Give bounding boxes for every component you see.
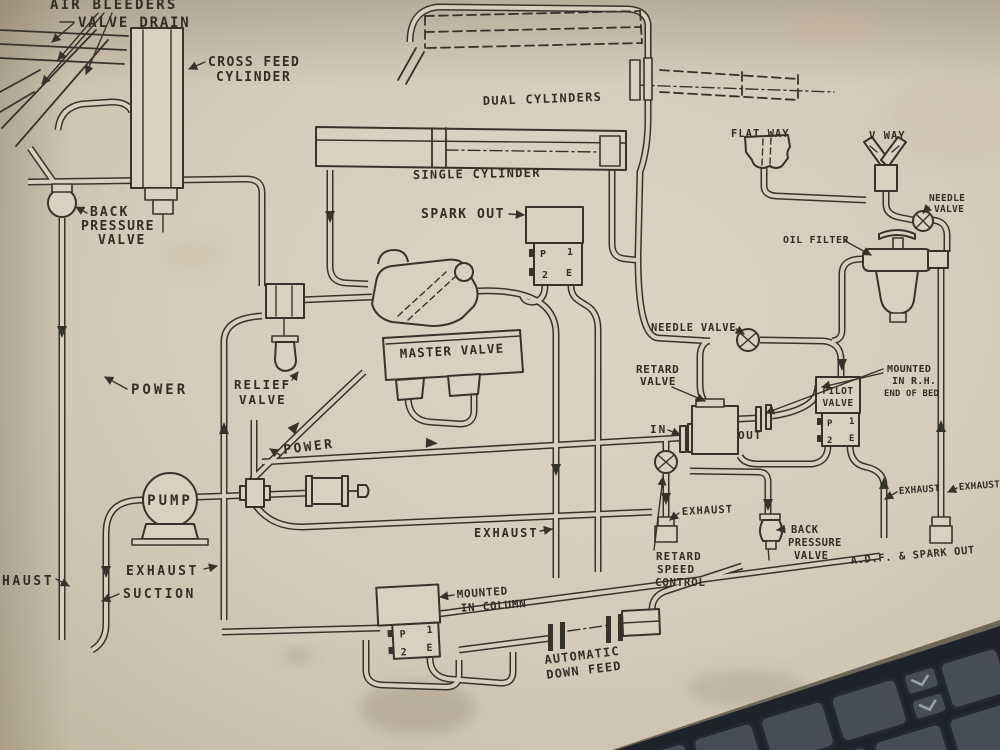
- label-pump: PUMP: [147, 493, 193, 509]
- connector-bar: [606, 616, 611, 643]
- label-air-bleeders: AIR BLEEDERS: [50, 0, 178, 13]
- label-back-pressure-left-1: BACK: [90, 205, 129, 220]
- port-e: E: [566, 268, 572, 279]
- label-retard-valve-2: VALVE: [640, 375, 676, 388]
- label-back-pressure-right-3: VALVE: [794, 550, 829, 562]
- label-valve-drain: VALVE DRAIN: [78, 15, 191, 31]
- port-1: 1: [849, 417, 854, 427]
- label-single-cylinder: SINGLE CYLINDER: [413, 166, 541, 182]
- spark-out-valve: [526, 207, 583, 285]
- label-relief-2: VALVE: [239, 392, 287, 407]
- port-2: 2: [827, 436, 832, 446]
- label-power-left: POWER: [131, 382, 188, 398]
- schematic-svg: AIR BLEEDERS VALVE DRAIN CROSS FEED CYLI…: [0, 0, 1000, 750]
- retard-valve-top-flange: [696, 399, 724, 407]
- label-exhaust-cut: HAUST: [2, 574, 54, 589]
- label-out: OUT: [738, 429, 762, 442]
- back-pressure-valve-right-body: [760, 520, 782, 541]
- oil-filter-nub: [890, 313, 906, 322]
- label-rsc-3: CONTROL: [655, 576, 706, 589]
- rod-end-cap: [600, 136, 620, 166]
- label-spark-out: SPARK OUT: [421, 207, 505, 222]
- label-back-pressure-left-2: PRESSURE: [81, 219, 155, 234]
- out-flange: [766, 405, 771, 429]
- plug-bullet: [358, 485, 369, 497]
- port-2: 2: [400, 647, 407, 658]
- paper-stain: [360, 682, 476, 734]
- paper-stain: [162, 241, 222, 269]
- label-relief-1: RELIEF: [234, 377, 291, 392]
- pump-base: [142, 524, 198, 539]
- cross-fitting: [246, 479, 264, 507]
- drain-fitting: [153, 200, 173, 214]
- port-2: 2: [542, 270, 548, 281]
- label-back-pressure-left-3: VALVE: [98, 233, 146, 248]
- cylinder-flange: [145, 188, 177, 200]
- label-rsc-1: RETARD: [656, 550, 702, 563]
- port-e: E: [426, 643, 433, 654]
- label-v-way: V WAY: [869, 130, 906, 142]
- port-1: 1: [426, 625, 433, 636]
- master-valve-pivot: [455, 263, 473, 281]
- label-mounted-rh-2: IN R.H.: [892, 376, 936, 387]
- label-oil-filter: OIL FILTER: [783, 235, 850, 246]
- port-p: P: [399, 629, 406, 640]
- relief-valve-body: [275, 342, 296, 371]
- unloader-body: [312, 478, 342, 504]
- single-cylinder-drawing: [316, 127, 626, 170]
- v-way-holder: [875, 165, 897, 191]
- port-p: P: [540, 249, 546, 260]
- label-mounted-rh-3: END OF BED: [884, 389, 939, 399]
- rod-connector: [630, 60, 640, 100]
- master-valve-foot: [448, 374, 480, 396]
- out-flange: [756, 407, 761, 431]
- port-p: P: [827, 419, 833, 429]
- label-needle-valve-top-1: NEEDLE: [929, 193, 965, 204]
- label-needle-valve-top-2: VALVE: [934, 204, 964, 215]
- label-cross-feed-2: CYLINDER: [216, 70, 291, 85]
- single-cylinder-body: [316, 127, 626, 170]
- port-e: E: [849, 434, 854, 444]
- valve-neck: [52, 184, 72, 192]
- in-flange: [680, 426, 686, 452]
- label-exhaust-center: EXHAUST: [474, 526, 539, 540]
- master-valve-foot: [396, 378, 424, 400]
- bp-valve-stub: [766, 541, 776, 549]
- connector-bar: [548, 624, 553, 651]
- label-rsc-2: SPEED: [657, 563, 695, 576]
- exhaust-muffler: [930, 526, 952, 543]
- label-suction: SUCTION: [123, 587, 196, 602]
- cross-feed-cylinder-body: [131, 28, 183, 188]
- label-in: IN: [650, 423, 667, 436]
- label-back-pressure-right-1: BACK: [791, 524, 819, 536]
- connector-bar: [560, 622, 565, 649]
- paper-stain: [284, 650, 312, 662]
- label-pilot-1: PILOT: [822, 386, 853, 397]
- label-back-pressure-right-2: PRESSURE: [788, 537, 842, 549]
- oil-filter-header: [863, 249, 931, 271]
- elbow-block: [266, 284, 304, 318]
- photo-of-hydraulic-schematic: AIR BLEEDERS VALVE DRAIN CROSS FEED CYLI…: [0, 0, 1000, 750]
- pump-base-plate: [132, 539, 208, 545]
- label-needle-valve-mid: NEEDLE VALVE: [651, 322, 736, 334]
- label-pilot-2: VALVE: [822, 398, 853, 409]
- port-1: 1: [567, 247, 573, 258]
- exhaust-muffler: [932, 517, 950, 526]
- label-cross-feed-1: CROSS FEED: [208, 55, 300, 70]
- column-valve-box: [376, 584, 440, 625]
- exhaust-muffler: [655, 526, 677, 542]
- back-pressure-valve-left-body: [48, 189, 76, 217]
- label-exhaust-pump: EXHAUST: [126, 564, 199, 579]
- rod-connector: [644, 58, 652, 100]
- paper-stain: [782, 12, 878, 44]
- label-flat-way: FLAT WAY: [731, 128, 790, 140]
- spark-out-box: [526, 207, 583, 243]
- retard-valve-body: [692, 406, 738, 454]
- label-mounted-rh-1: MOUNTED: [887, 364, 931, 375]
- filter-right-fitting: [928, 251, 948, 268]
